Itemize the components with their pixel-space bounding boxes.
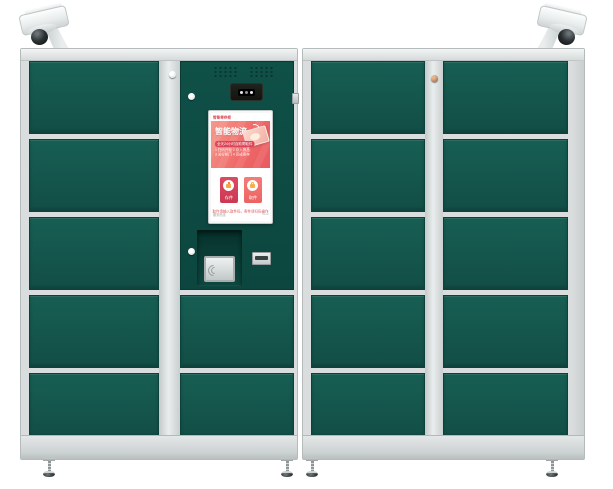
screen-hero-banner: 智能物流 全天24小时自助寄取件 1 扫码开柜 2 存入物品 3 关好柜门 4 … <box>211 121 270 168</box>
locker-door[interactable] <box>443 61 568 134</box>
speaker-grille-icon <box>213 66 239 78</box>
cabinet-top-frame <box>303 49 584 61</box>
qr-scanner-window <box>230 83 263 101</box>
hinge-strip <box>425 61 443 436</box>
leveling-foot <box>545 458 559 482</box>
screen-action-panel: 存件 取件 取件请输入取件码，寄件请扫码操作 服务热线 V1.0 <box>211 168 270 221</box>
deposit-button-label: 存件 <box>224 195 232 201</box>
camera-lens-icon <box>245 91 248 94</box>
pickup-button-label: 取件 <box>248 195 256 201</box>
cabinet-top-frame <box>21 49 297 61</box>
hinge-strip <box>159 61 180 436</box>
action-button-row: 存件 取件 <box>211 177 270 203</box>
camera-dome-icon <box>558 29 575 45</box>
hero-steps-line2: 3 关好柜门 4 完成寄存 <box>215 153 250 158</box>
hero-steps: 1 扫码开柜 2 存入物品 3 关好柜门 4 完成寄存 <box>215 148 250 157</box>
locker-door[interactable] <box>29 295 159 368</box>
locker-door[interactable] <box>29 61 159 134</box>
nfc-pad-icon[interactable] <box>204 256 235 282</box>
locker-door[interactable] <box>311 373 425 438</box>
locker-door[interactable] <box>311 139 425 212</box>
speaker-grille-icon <box>249 66 275 78</box>
right-locker-cabinet <box>302 48 585 460</box>
locker-door[interactable] <box>311 61 425 134</box>
keyhole-lock-icon <box>169 71 176 78</box>
smart-locker-product-view: 智能寄存柜 帮助 · 登录 智能物流 全天24小时自助寄取件 1 扫码开柜 2 … <box>0 0 613 489</box>
screen-ui: 智能寄存柜 帮助 · 登录 智能物流 全天24小时自助寄取件 1 扫码开柜 2 … <box>211 113 270 221</box>
locker-door[interactable] <box>311 295 425 368</box>
screen-header: 智能寄存柜 帮助 · 登录 <box>211 113 270 121</box>
keyhole-lock-icon <box>431 75 438 82</box>
camera-dome-icon <box>31 29 48 45</box>
locker-door[interactable] <box>443 295 568 368</box>
card-slot <box>252 252 271 265</box>
locker-door[interactable] <box>180 373 294 438</box>
control-console: 智能寄存柜 帮助 · 登录 智能物流 全天24小时自助寄取件 1 扫码开柜 2 … <box>180 61 294 290</box>
cabinet-base <box>303 435 584 459</box>
locker-door[interactable] <box>443 139 568 212</box>
locker-door[interactable] <box>29 373 159 438</box>
locker-door[interactable] <box>443 217 568 290</box>
cabinet-base <box>21 435 297 459</box>
leveling-foot <box>305 458 319 482</box>
led-dot-icon <box>250 91 253 94</box>
locker-door[interactable] <box>29 217 159 290</box>
service-lock-icon <box>188 248 195 255</box>
kiosk-touchscreen[interactable]: 智能寄存柜 帮助 · 登录 智能物流 全天24小时自助寄取件 1 扫码开柜 2 … <box>208 110 273 224</box>
led-dot-icon <box>240 91 243 94</box>
cabinet-side-shade <box>572 60 584 436</box>
screen-footer: 服务热线 V1.0 <box>213 210 268 220</box>
hinge-nub <box>292 93 299 104</box>
leveling-foot <box>42 458 56 482</box>
pickup-button[interactable]: 取件 <box>244 177 262 203</box>
deposit-button[interactable]: 存件 <box>220 177 238 203</box>
package-icon <box>223 180 234 191</box>
hero-banner-pill: 全天24小时自助寄取件 <box>215 141 254 147</box>
locker-door[interactable] <box>443 373 568 438</box>
left-locker-cabinet: 智能寄存柜 帮助 · 登录 智能物流 全天24小时自助寄取件 1 扫码开柜 2 … <box>20 48 298 460</box>
screen-brand-logo: 智能寄存柜 <box>213 115 231 120</box>
locker-door[interactable] <box>180 295 294 368</box>
pickup-recess <box>197 230 242 286</box>
lock-icon <box>247 180 258 191</box>
footer-right-text: V1.0 <box>262 213 268 218</box>
locker-door[interactable] <box>311 217 425 290</box>
locker-door[interactable] <box>29 139 159 212</box>
scanner-led-strip <box>238 89 255 96</box>
service-lock-icon <box>188 93 195 100</box>
leveling-foot <box>280 458 294 482</box>
footer-left-text: 服务热线 <box>213 213 226 218</box>
